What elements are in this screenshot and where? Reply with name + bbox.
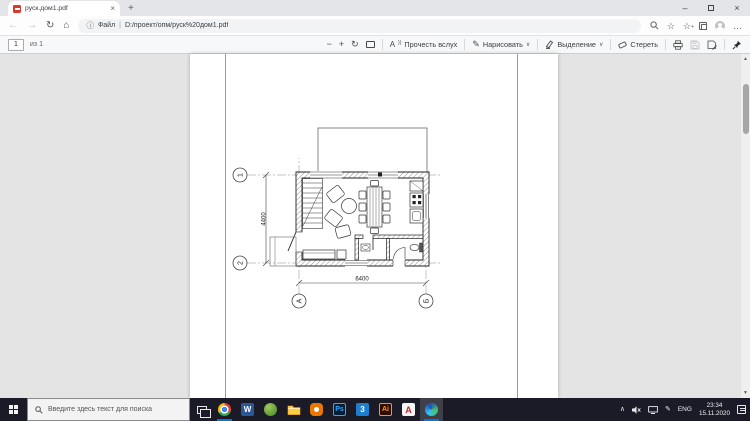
bottom-door xyxy=(393,248,405,268)
tray-chevron-icon[interactable]: ∧ xyxy=(620,406,625,413)
toilet xyxy=(410,243,423,252)
erase-button[interactable]: Стереть xyxy=(618,40,658,49)
language-indicator[interactable]: ENG xyxy=(678,406,692,413)
new-tab-button[interactable]: + xyxy=(128,2,134,16)
axis-label-b: Б xyxy=(424,298,431,303)
address-url[interactable]: D:/проект/опм/руск%20дом1.pdf xyxy=(125,22,228,29)
system-tray: ∧ ✎ ENG 23:34 15.11.2020 xyxy=(620,398,750,421)
dim-width-label: 6400 xyxy=(355,277,369,283)
network-icon[interactable] xyxy=(648,406,658,414)
window-controls: – × xyxy=(672,0,750,16)
toolbar-separator xyxy=(382,39,383,50)
fit-page-button[interactable] xyxy=(366,41,375,48)
read-aloud-waves-icon: )) xyxy=(398,40,401,46)
info-icon[interactable]: ⓘ xyxy=(86,20,94,31)
start-button[interactable] xyxy=(0,398,27,421)
pdf-page: 1 2 А Б 4400 6400 xyxy=(190,54,558,398)
action-center-icon[interactable] xyxy=(737,405,746,414)
taskbar-app-3d[interactable]: 3 xyxy=(351,398,374,421)
scroll-down-icon[interactable]: ▼ xyxy=(741,388,750,398)
forward-icon[interactable]: → xyxy=(27,21,37,31)
browser-navbar: ← → ↻ ⌂ ⓘ Файл | D:/проект/опм/руск%20до… xyxy=(0,16,750,36)
save-icon xyxy=(690,40,700,50)
add-favorite-icon[interactable]: ☆+ xyxy=(683,21,691,31)
collections-icon[interactable] xyxy=(699,22,707,30)
taskbar-app-explorer[interactable] xyxy=(282,398,305,421)
toolbar-separator xyxy=(724,39,725,50)
highlight-chevron-icon[interactable]: ∨ xyxy=(599,41,603,48)
porch-outline xyxy=(318,128,427,172)
maximize-button[interactable] xyxy=(698,0,724,16)
washbasin xyxy=(361,244,370,251)
toolbar-separator xyxy=(610,39,611,50)
save-as-icon xyxy=(707,40,717,50)
taskbar-search-placeholder: Введите здесь текст для поиска xyxy=(48,406,152,413)
tab-close-icon[interactable]: × xyxy=(110,5,115,13)
word-icon: W xyxy=(241,403,254,416)
scrollbar-thumb[interactable] xyxy=(743,84,749,134)
read-aloud-button[interactable]: A)) Прочесть вслух xyxy=(390,40,458,49)
pen-icon: ✎ xyxy=(472,40,480,49)
zoom-out-icon: − xyxy=(327,40,332,49)
clock-date: 15.11.2020 xyxy=(699,410,730,418)
dim-height-label: 4400 xyxy=(262,212,268,226)
menu-dots-icon[interactable]: … xyxy=(733,21,742,31)
zoom-in-button[interactable]: + xyxy=(339,40,344,49)
highlighter-icon xyxy=(545,40,554,49)
close-button[interactable]: × xyxy=(724,0,750,16)
blender-icon xyxy=(310,403,323,416)
read-aloud-icon: A xyxy=(390,40,395,49)
pdf-viewer[interactable]: 1 2 А Б 4400 6400 ▲ xyxy=(0,54,750,398)
file-explorer-icon xyxy=(287,404,301,416)
rotate-icon: ↻ xyxy=(351,40,359,49)
taskbar-app-word[interactable]: W xyxy=(236,398,259,421)
draw-chevron-icon[interactable]: ∨ xyxy=(526,41,530,48)
taskbar: Введите здесь текст для поиска W Ps 3 Ai… xyxy=(0,398,750,421)
chrome-icon xyxy=(218,403,231,416)
zoom-out-button[interactable]: − xyxy=(327,40,332,49)
staircase xyxy=(303,179,323,229)
pdf-tools-group: − + ↻ A)) Прочесть вслух ✎ Нарисовать ∨ … xyxy=(327,39,742,50)
pin-icon xyxy=(732,40,742,50)
axis-label-a: А xyxy=(297,298,304,303)
edge-icon xyxy=(425,403,438,416)
maximize-icon xyxy=(708,5,714,11)
screen: руск.дом1.pdf × + – × ← → ↻ ⌂ ⓘ Файл | D… xyxy=(0,0,750,421)
taskbar-app-green[interactable] xyxy=(259,398,282,421)
erase-label: Стереть xyxy=(630,40,658,49)
draw-label: Нарисовать xyxy=(483,40,523,49)
taskbar-search[interactable]: Введите здесь текст для поиска xyxy=(27,398,190,421)
lounge-furniture xyxy=(324,185,357,239)
axis-label-2: 2 xyxy=(238,261,245,265)
illustrator-icon: Ai xyxy=(379,403,392,416)
zoom-in-icon: + xyxy=(339,40,344,49)
pen-tray-icon[interactable]: ✎ xyxy=(665,406,671,413)
taskbar-app-task-view[interactable] xyxy=(190,398,213,421)
print-button[interactable] xyxy=(673,40,683,50)
kitchen-counter xyxy=(410,181,423,223)
toolbar-separator xyxy=(537,39,538,50)
fit-page-icon xyxy=(366,41,375,48)
taskbar-app-illustrator[interactable]: Ai xyxy=(374,398,397,421)
scroll-up-icon[interactable]: ▲ xyxy=(741,54,750,64)
navbar-right-icons: ☆ ☆+ … xyxy=(650,21,742,31)
address-scheme: Файл xyxy=(98,22,115,29)
taskbar-app-photoshop[interactable]: Ps xyxy=(328,398,351,421)
minimize-button[interactable]: – xyxy=(672,0,698,16)
page-count-label: из 1 xyxy=(30,41,43,48)
axis-label-1: 1 xyxy=(238,173,245,177)
rotate-button[interactable]: ↻ xyxy=(351,40,359,49)
eraser-icon xyxy=(618,40,627,49)
draw-button[interactable]: ✎ Нарисовать ∨ xyxy=(472,40,530,49)
page-number-input[interactable]: 1 xyxy=(8,39,24,51)
pdf-favicon-icon xyxy=(13,5,21,13)
add-favorite-star: ☆ xyxy=(683,21,691,31)
add-favorite-plus: + xyxy=(691,22,694,32)
taskbar-app-red-a[interactable]: А xyxy=(397,398,420,421)
browser-tab[interactable]: руск.дом1.pdf × xyxy=(8,1,120,16)
toolbar-separator xyxy=(665,39,666,50)
dining-set xyxy=(359,181,390,234)
photoshop-icon: Ps xyxy=(333,403,346,416)
volume-icon[interactable] xyxy=(632,406,641,414)
save-button[interactable] xyxy=(690,40,700,50)
favorites-star-icon[interactable]: ☆ xyxy=(667,21,675,31)
sofa xyxy=(303,250,346,259)
clock-time: 23:34 xyxy=(699,402,730,410)
print-icon xyxy=(673,40,683,50)
vertical-scrollbar[interactable]: ▲ ▼ xyxy=(741,54,750,398)
taskbar-app-edge[interactable] xyxy=(420,398,443,421)
taskbar-app-chrome[interactable] xyxy=(213,398,236,421)
floor-plan-drawing: 1 2 А Б 4400 6400 xyxy=(190,54,558,398)
search-icon[interactable] xyxy=(650,21,659,30)
taskbar-clock[interactable]: 23:34 15.11.2020 xyxy=(699,402,730,417)
address-bar[interactable]: ⓘ Файл | D:/проект/опм/руск%20дом1.pdf xyxy=(78,19,640,33)
back-icon[interactable]: ← xyxy=(8,21,18,31)
pin-toolbar-button[interactable] xyxy=(732,40,742,50)
app-3d-icon: 3 xyxy=(356,403,369,416)
toolbar-separator xyxy=(464,39,465,50)
read-aloud-label: Прочесть вслух xyxy=(404,40,457,49)
windows-logo-icon xyxy=(9,405,18,414)
taskbar-app-blender[interactable] xyxy=(305,398,328,421)
right-window xyxy=(422,194,429,218)
task-view-icon xyxy=(197,406,207,414)
home-icon[interactable]: ⌂ xyxy=(63,21,69,31)
taskbar-search-icon xyxy=(35,406,43,414)
browser-titlebar: руск.дом1.pdf × + – × xyxy=(0,0,750,16)
refresh-icon[interactable]: ↻ xyxy=(46,21,54,31)
pdf-toolbar: 1 из 1 − + ↻ A)) Прочесть вслух ✎ Нарисо… xyxy=(0,36,750,54)
highlight-button[interactable]: Выделение ∨ xyxy=(545,40,603,49)
tab-title: руск.дом1.pdf xyxy=(25,5,106,12)
address-divider: | xyxy=(119,22,121,29)
save-as-button[interactable] xyxy=(707,40,717,50)
highlight-label: Выделение xyxy=(557,40,596,49)
profile-avatar[interactable] xyxy=(715,21,725,31)
green-app-icon xyxy=(264,403,277,416)
red-a-app-icon: А xyxy=(402,403,415,416)
